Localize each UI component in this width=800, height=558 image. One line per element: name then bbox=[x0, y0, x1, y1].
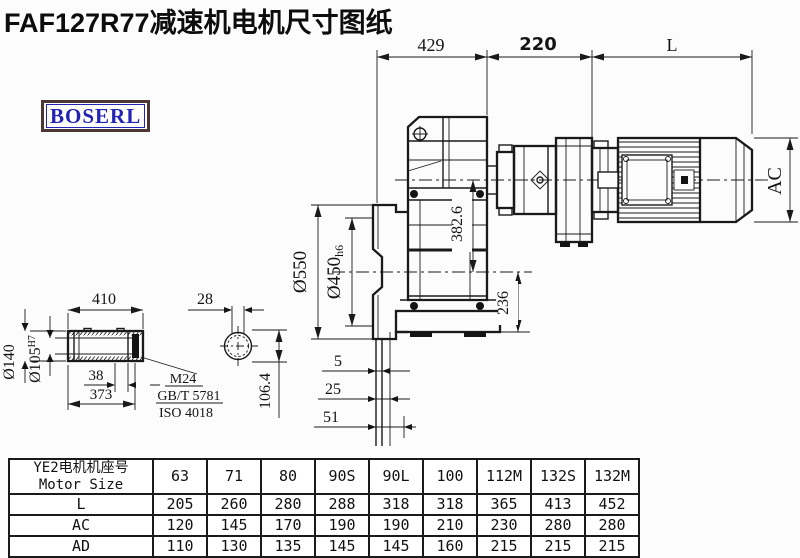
cell: 230 bbox=[477, 515, 531, 536]
cell: 190 bbox=[315, 515, 369, 536]
cell: 280 bbox=[261, 494, 315, 515]
table-row-L: L 205 260 280 288 318 318 365 413 452 bbox=[9, 494, 639, 515]
table-header-zh: YE2电机机座号 bbox=[10, 460, 152, 476]
dim-382: 382.6 bbox=[449, 180, 473, 272]
cell: 413 bbox=[531, 494, 585, 515]
page: { "title": "FAF127R77减速机电机尺寸图纸", "brand"… bbox=[0, 0, 800, 557]
shaft-detail: 410 Ø140 Ø105H7 38 373 M24 GB/T 5781 ISO… bbox=[1, 291, 223, 421]
dimension-label-AC: AC bbox=[764, 167, 786, 195]
cell: 110 bbox=[153, 536, 207, 557]
dimension-label-28: 28 bbox=[197, 291, 213, 308]
foot-bracket bbox=[376, 332, 404, 446]
dimension-label-373: 373 bbox=[90, 387, 113, 403]
row-label: AC bbox=[9, 515, 153, 536]
cell: 318 bbox=[423, 494, 477, 515]
column-header: 112M bbox=[477, 459, 531, 494]
cell: 135 bbox=[261, 536, 315, 557]
cell: 145 bbox=[315, 536, 369, 557]
dimension-label-140: Ø140 bbox=[1, 344, 18, 380]
dimension-label-450: Ø450h6 bbox=[324, 245, 346, 299]
cell: 160 bbox=[423, 536, 477, 557]
column-header: 63 bbox=[153, 459, 207, 494]
cell: 215 bbox=[585, 536, 639, 557]
cell: 280 bbox=[585, 515, 639, 536]
column-header: 80 bbox=[261, 459, 315, 494]
dimension-label-220: 220 bbox=[519, 34, 557, 55]
cell: 145 bbox=[207, 515, 261, 536]
column-header: 132M bbox=[585, 459, 639, 494]
table-row-AC: AC 120 145 170 190 190 210 230 280 280 bbox=[9, 515, 639, 536]
table-header-row: YE2电机机座号 Motor Size 63 71 80 90S 90L 100… bbox=[9, 459, 639, 494]
table-header-en: Motor Size bbox=[10, 477, 152, 493]
centerlines bbox=[332, 180, 772, 272]
row-label: L bbox=[9, 494, 153, 515]
motor bbox=[592, 138, 752, 222]
dim-top: 429 220 L bbox=[377, 34, 752, 203]
table-header-motor-size: YE2电机机座号 Motor Size bbox=[9, 459, 153, 494]
column-header: 100 bbox=[423, 459, 477, 494]
dimension-label-236: 236 bbox=[495, 291, 512, 315]
column-header: 132S bbox=[531, 459, 585, 494]
cell: 365 bbox=[477, 494, 531, 515]
dimension-label-106-4: 106.4 bbox=[257, 373, 274, 409]
spec-table: YE2电机机座号 Motor Size 63 71 80 90S 90L 100… bbox=[8, 458, 640, 558]
cell: 452 bbox=[585, 494, 639, 515]
cell: 280 bbox=[531, 515, 585, 536]
column-header: 90S bbox=[315, 459, 369, 494]
cell: 215 bbox=[531, 536, 585, 557]
gearbox-housing bbox=[396, 117, 500, 337]
dimension-label-5: 5 bbox=[334, 353, 342, 370]
column-header: 71 bbox=[207, 459, 261, 494]
dimension-label-38: 38 bbox=[89, 368, 104, 384]
cell: 215 bbox=[477, 536, 531, 557]
dimension-label-L: L bbox=[667, 35, 678, 55]
dimension-label-51: 51 bbox=[323, 409, 339, 426]
note-iso: ISO 4018 bbox=[159, 406, 213, 421]
dimension-label-429: 429 bbox=[418, 35, 445, 55]
cell: 260 bbox=[207, 494, 261, 515]
dimension-label-550: Ø550 bbox=[290, 251, 311, 293]
column-header: 90L bbox=[369, 459, 423, 494]
dim-foot: 5 25 51 bbox=[314, 353, 416, 430]
dimension-label-25: 25 bbox=[325, 381, 341, 398]
cell: 120 bbox=[153, 515, 207, 536]
cell: 210 bbox=[423, 515, 477, 536]
dim-236: 236 bbox=[495, 272, 530, 332]
cell: 130 bbox=[207, 536, 261, 557]
cell: 318 bbox=[369, 494, 423, 515]
dimension-label-382-6: 382.6 bbox=[449, 206, 466, 242]
cell: 145 bbox=[369, 536, 423, 557]
note-m24: M24 bbox=[170, 372, 196, 387]
technical-drawing: 429 220 L AC 382.6 236 Ø550 Ø450h6 5 bbox=[0, 0, 800, 457]
cell: 288 bbox=[315, 494, 369, 515]
input-adapter bbox=[487, 138, 592, 247]
row-label: AD bbox=[9, 536, 153, 557]
note-gbt: GB/T 5781 bbox=[157, 389, 220, 404]
dimension-label-410: 410 bbox=[92, 291, 116, 308]
dimension-label-105: Ø105H7 bbox=[27, 335, 44, 383]
cell: 205 bbox=[153, 494, 207, 515]
cell: 170 bbox=[261, 515, 315, 536]
cell: 190 bbox=[369, 515, 423, 536]
table-row-AD: AD 110 130 135 145 145 160 215 215 215 bbox=[9, 536, 639, 557]
